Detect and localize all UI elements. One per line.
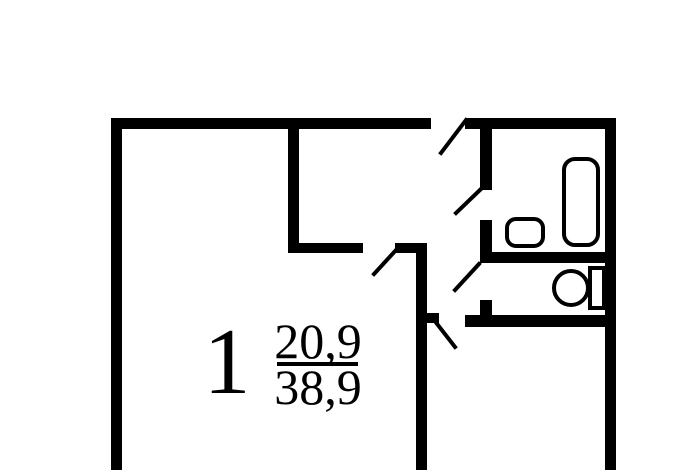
floor-plan: 1 20,9 38,9 [0, 0, 700, 470]
room-number: 1 [204, 310, 251, 414]
wall-bath-left-upper [480, 129, 492, 190]
wall-room-horizontal [288, 243, 363, 253]
total-area-value: 38,9 [274, 359, 362, 415]
wall-toilet-bottom [465, 315, 616, 327]
sink-icon [507, 219, 543, 246]
wall-outer-left [111, 118, 122, 470]
wall-outer-right [605, 118, 616, 470]
floor-plan-drawing: 1 20,9 38,9 [0, 0, 700, 470]
bathtub-icon [564, 159, 598, 245]
wall-outer-top-left [111, 118, 431, 129]
room-label: 1 20,9 38,9 [204, 310, 362, 415]
wall-bath-toilet-divider [480, 252, 616, 263]
toilet-bowl-icon [554, 271, 588, 305]
wall-room-vertical [288, 118, 299, 253]
wall-hall-vertical [416, 243, 427, 470]
toilet-tank-icon [590, 268, 604, 308]
wall-outer-top-right [465, 118, 616, 129]
